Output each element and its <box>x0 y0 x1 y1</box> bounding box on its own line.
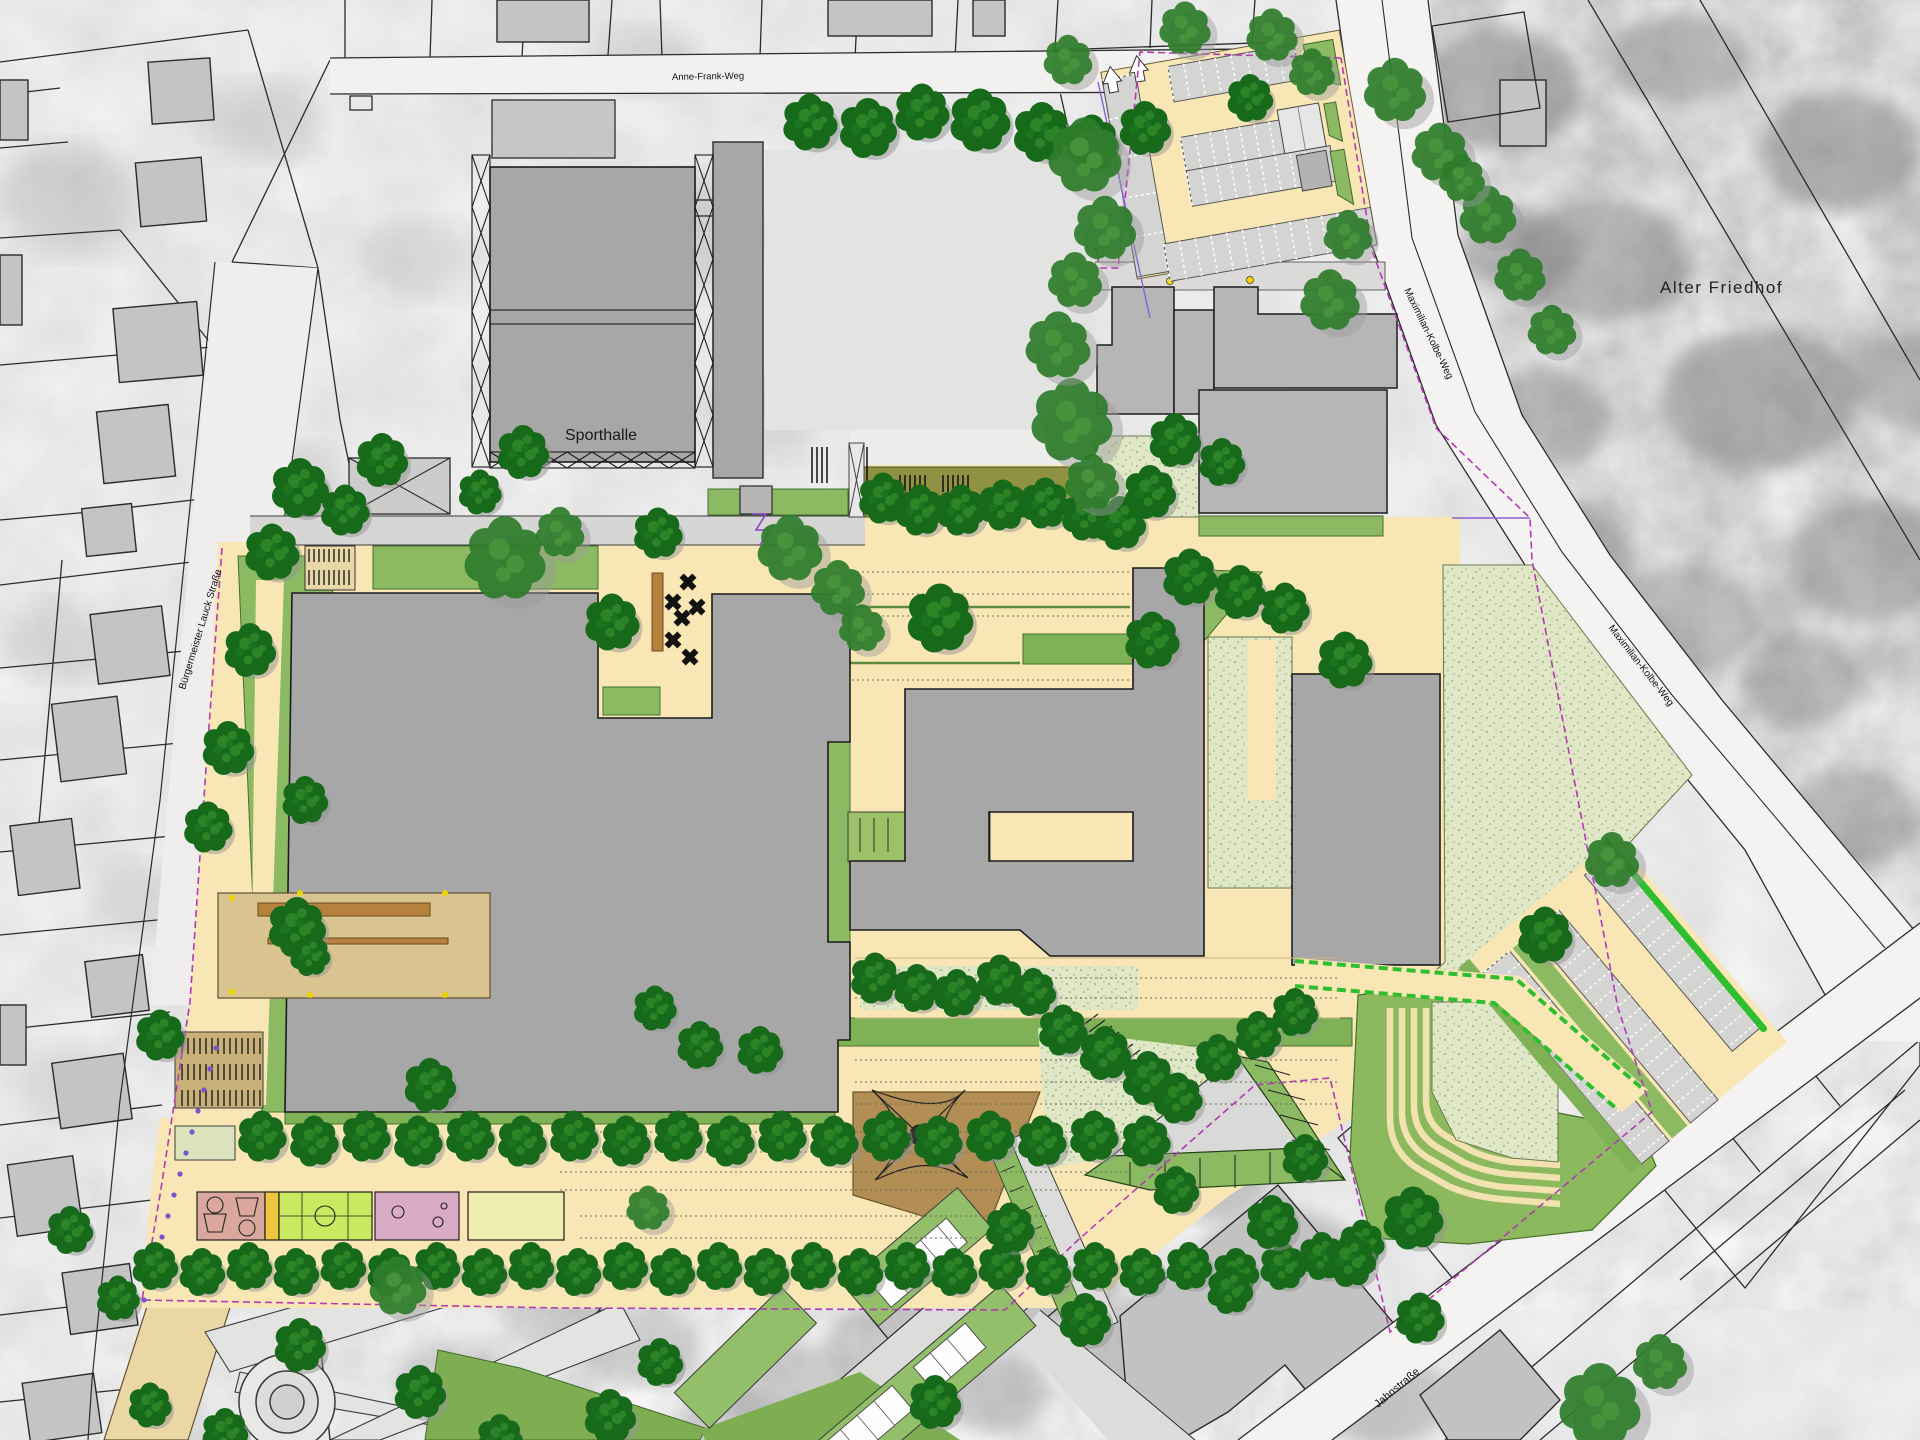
svg-text:Anne-Frank-Weg: Anne-Frank-Weg <box>672 71 744 83</box>
svg-text:Alter Friedhof: Alter Friedhof <box>1660 278 1783 297</box>
svg-text:Sporthalle: Sporthalle <box>565 427 637 444</box>
